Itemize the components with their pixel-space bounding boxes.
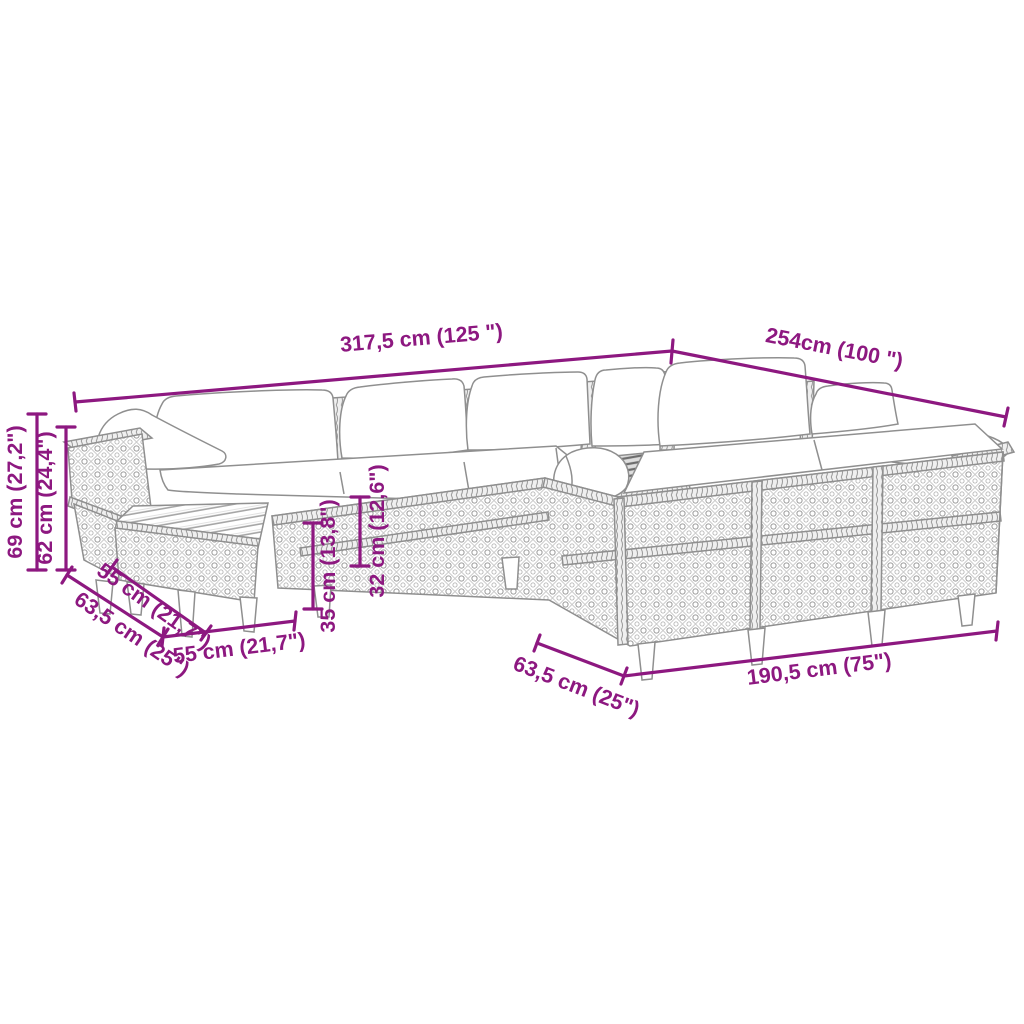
back-cushion <box>658 358 810 446</box>
label-right-module-depth: 63,5 cm (25") <box>510 651 643 721</box>
label-seat-height: 35 cm (13,8") <box>316 499 340 632</box>
label-total-height: 69 cm (27,2") <box>3 425 27 558</box>
sofa-leg <box>958 594 975 626</box>
label-front-width: 190,5 cm (75") <box>746 648 893 690</box>
module-seam <box>871 466 883 612</box>
product-dimension-diagram: 317,5 cm (125 ") 254cm (100 ") 69 cm (27… <box>0 0 1024 1024</box>
label-frame-height: 32 cm (12,6") <box>365 464 389 597</box>
back-cushion <box>591 368 668 446</box>
sofa-set-diagram: 317,5 cm (125 ") 254cm (100 ") 69 cm (27… <box>0 0 1024 1024</box>
back-cushion <box>466 372 590 450</box>
dim-cap <box>1004 408 1008 426</box>
dim-cap <box>996 622 998 640</box>
sofa-leg <box>868 610 885 646</box>
module-seam <box>750 481 762 630</box>
label-back-width: 317,5 cm (125 ") <box>339 319 504 357</box>
dim-cap <box>294 612 296 630</box>
label-backrest-height: 62 cm (24,4") <box>33 431 57 564</box>
back-cushion <box>811 383 898 434</box>
back-cushion <box>340 379 468 458</box>
dim-cap <box>74 393 76 411</box>
